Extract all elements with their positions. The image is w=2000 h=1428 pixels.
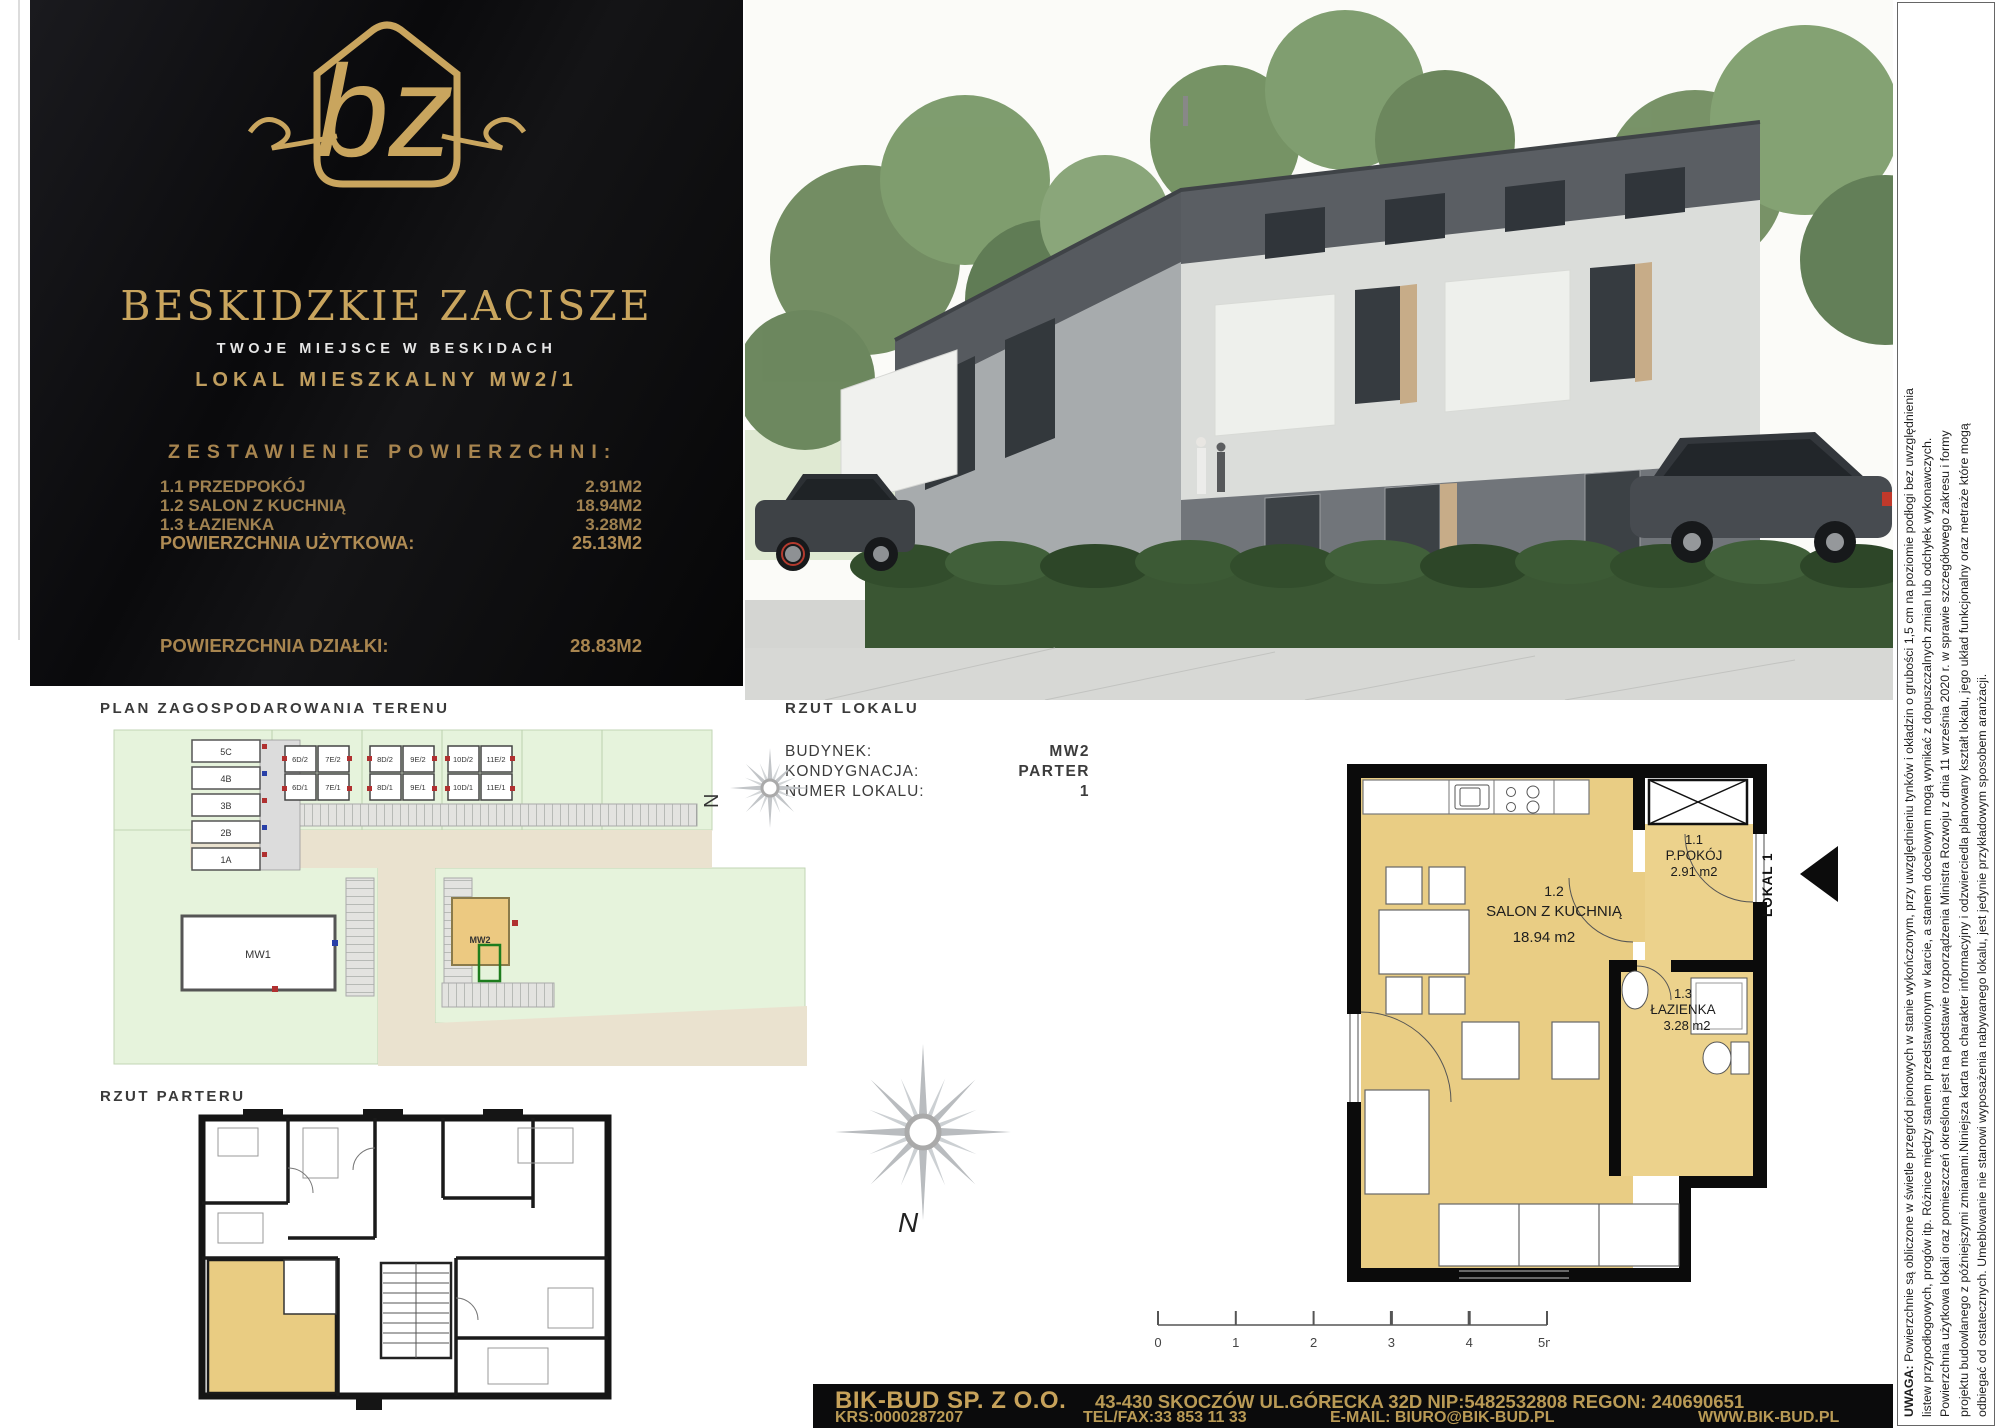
svg-text:7E/1: 7E/1 [325, 783, 340, 792]
company-krs: KRS:0000287207 [835, 1409, 963, 1427]
svg-text:4: 4 [1466, 1335, 1473, 1350]
area-row-value: 3.28M2 [585, 515, 642, 534]
disclaimer-line: odbiegać od ostatecznych. Umeblowanie ni… [1973, 11, 1991, 1417]
room-area: 3.28 m2 [1664, 1018, 1711, 1033]
area-row-value: 2.91M2 [585, 477, 642, 496]
field-row: KONDYGNACJA: PARTER [785, 762, 1090, 782]
hedge [850, 540, 1893, 655]
area-row: 1.2 SALON Z KUCHNIĄ 18.94M2 [160, 496, 642, 515]
building-render [745, 0, 1893, 700]
room-area: 2.91 m2 [1671, 864, 1718, 879]
disclaimer-strip: UWAGA: Powierzchnie są obliczone w świet… [1897, 2, 1995, 1426]
area-row-label: 1.3 ŁAZIENKA [160, 515, 274, 534]
disclaimer-line: UWAGA: Powierzchnie są obliczone w świet… [1900, 11, 1918, 1417]
usable-area-label: POWIERZCHNIA UŻYTKOWA: [160, 534, 414, 553]
logo-monogram: bz [316, 38, 453, 184]
room-name: SALON Z KUCHNIĄ [1486, 903, 1623, 920]
scale-bar: 0 1 2 3 4 5m [1155, 1305, 1550, 1360]
svg-text:6D/1: 6D/1 [292, 783, 308, 792]
brand-name: BESKIDZKIE ZACISZE [30, 282, 743, 330]
room-name: ŁAZIENKA [1650, 1002, 1715, 1017]
disclaimer-line: listew przypodłogowych, progów itp. Różn… [1918, 11, 1936, 1417]
compass-n-label: N [898, 1207, 919, 1238]
toilet-icon [1731, 1042, 1749, 1074]
brand-panel: bz BESKIDZKIE ZACISZE TWOJE MIEJSCE W BE… [30, 0, 743, 686]
svg-text:0: 0 [1155, 1335, 1162, 1350]
svg-text:6D/2: 6D/2 [292, 755, 308, 764]
disclaimer-line: projektu budowlanego z późniejszymi zmia… [1955, 11, 1973, 1417]
svg-text:1: 1 [1232, 1335, 1239, 1350]
field-value: 1 [1080, 782, 1090, 802]
mw2-label: MW2 [470, 935, 491, 945]
area-row-label: 1.1 PRZEDPOKÓJ [160, 477, 306, 496]
mw1-label: MW1 [245, 949, 271, 961]
unit-plan-title: RZUT LOKALU [785, 700, 919, 717]
svg-text:2: 2 [1310, 1335, 1317, 1350]
unit-entry-label: LOKAL 1 [1760, 845, 1776, 917]
unit-floor-plan: 1.1 P.POKÓJ 2.91 m2 1.2 SALON Z KUCHNIĄ … [1338, 752, 1790, 1292]
property-card: bz BESKIDZKIE ZACISZE TWOJE MIEJSCE W BE… [0, 0, 2000, 1428]
row-house-label: 2B [220, 828, 231, 838]
area-row-label: 1.2 SALON Z KUCHNIĄ [160, 496, 346, 515]
svg-text:3: 3 [1388, 1335, 1395, 1350]
row-house-label: 3B [220, 801, 231, 811]
company-website: WWW.BIK-BUD.PL [1698, 1409, 1839, 1427]
svg-text:8D/1: 8D/1 [377, 783, 393, 792]
ground-floor-plan [188, 1108, 623, 1428]
plot-area-value: 28.83M2 [570, 636, 642, 655]
room-id: 1.3 [1674, 986, 1692, 1001]
svg-text:7E/2: 7E/2 [325, 755, 340, 764]
row-house-label: 5C [220, 747, 232, 757]
svg-text:9E/2: 9E/2 [410, 755, 425, 764]
front-paving [745, 648, 1893, 700]
washbasin-icon [1622, 971, 1648, 1009]
entry-arrow-icon [1800, 846, 1838, 902]
ground-floor-title: RZUT PARTERU [100, 1088, 246, 1105]
brand-logo-icon: bz [242, 8, 532, 220]
building-mw1-plan: MW1 [182, 916, 338, 992]
disclaimer-warning: UWAGA: [1902, 1365, 1916, 1417]
field-value: MW2 [1049, 742, 1090, 762]
row-house-label: 1A [220, 855, 231, 865]
row-house-label: 4B [220, 774, 231, 784]
compass-icon: N [828, 1040, 1018, 1240]
svg-text:5m: 5m [1538, 1335, 1550, 1350]
room-id: 1.1 [1685, 832, 1703, 847]
area-row: 1.3 ŁAZIENKA 3.28M2 [160, 515, 642, 534]
svg-text:9E/1: 9E/1 [410, 783, 425, 792]
compass-n-label: N [701, 794, 723, 808]
footer-bar: BIK-BUD SP. Z O.O. 43-430 SKOCZÓW UL.GÓR… [813, 1384, 1893, 1428]
wardrobe-icon [1649, 780, 1747, 824]
stairwell [381, 1263, 451, 1358]
page-left-margin-line [18, 0, 20, 640]
field-row: NUMER LOKALU: 1 [785, 782, 1090, 802]
usable-area-row: POWIERZCHNIA UŻYTKOWA: 25.13M2 [160, 534, 642, 553]
plot-area-row: POWIERZCHNIA DZIAŁKI: 28.83M2 [160, 636, 642, 655]
field-value: PARTER [1018, 762, 1090, 782]
unit-fields: BUDYNEK: MW2 KONDYGNACJA: PARTER NUMER L… [785, 742, 1090, 802]
company-email: E-MAIL: BIURO@BIK-BUD.PL [1330, 1409, 1554, 1427]
site-plan-title: PLAN ZAGOSPODAROWANIA TERENU [100, 700, 449, 717]
compass-icon: N [700, 740, 810, 840]
scale-tick-labels: 0 1 2 3 4 5m [1155, 1335, 1550, 1350]
area-row-value: 18.94M2 [576, 496, 642, 515]
area-row: 1.1 PRZEDPOKÓJ 2.91M2 [160, 477, 642, 496]
area-summary-heading: ZESTAWIENIE POWIERZCHNI: [168, 441, 617, 464]
tail-light [1882, 492, 1892, 506]
room-area: 18.94 m2 [1513, 929, 1576, 946]
svg-text:8D/2: 8D/2 [377, 755, 393, 764]
svg-text:10D/2: 10D/2 [453, 755, 473, 764]
svg-text:10D/1: 10D/1 [453, 783, 473, 792]
area-summary-list: 1.1 PRZEDPOKÓJ 2.91M2 1.2 SALON Z KUCHNI… [160, 477, 642, 553]
brand-tagline: TWOJE MIEJSCE W BESKIDACH [30, 341, 743, 357]
usable-area-value: 25.13M2 [572, 534, 642, 553]
svg-text:11E/1: 11E/1 [486, 783, 505, 792]
svg-text:11E/2: 11E/2 [486, 755, 505, 764]
company-phone: TEL/FAX:33 853 11 33 [1083, 1409, 1247, 1427]
unit-title: LOKAL MIESZKALNY MW2/1 [30, 369, 743, 392]
disclaimer-line: Powierzchnia użytkowa lokali oraz pomies… [1936, 11, 1954, 1417]
room-name: P.POKÓJ [1666, 848, 1723, 863]
room-id: 1.2 [1544, 883, 1564, 899]
field-row: BUDYNEK: MW2 [785, 742, 1090, 762]
plot-area-label: POWIERZCHNIA DZIAŁKI: [160, 636, 389, 655]
kitchen [1363, 780, 1589, 814]
antenna [1183, 96, 1188, 126]
